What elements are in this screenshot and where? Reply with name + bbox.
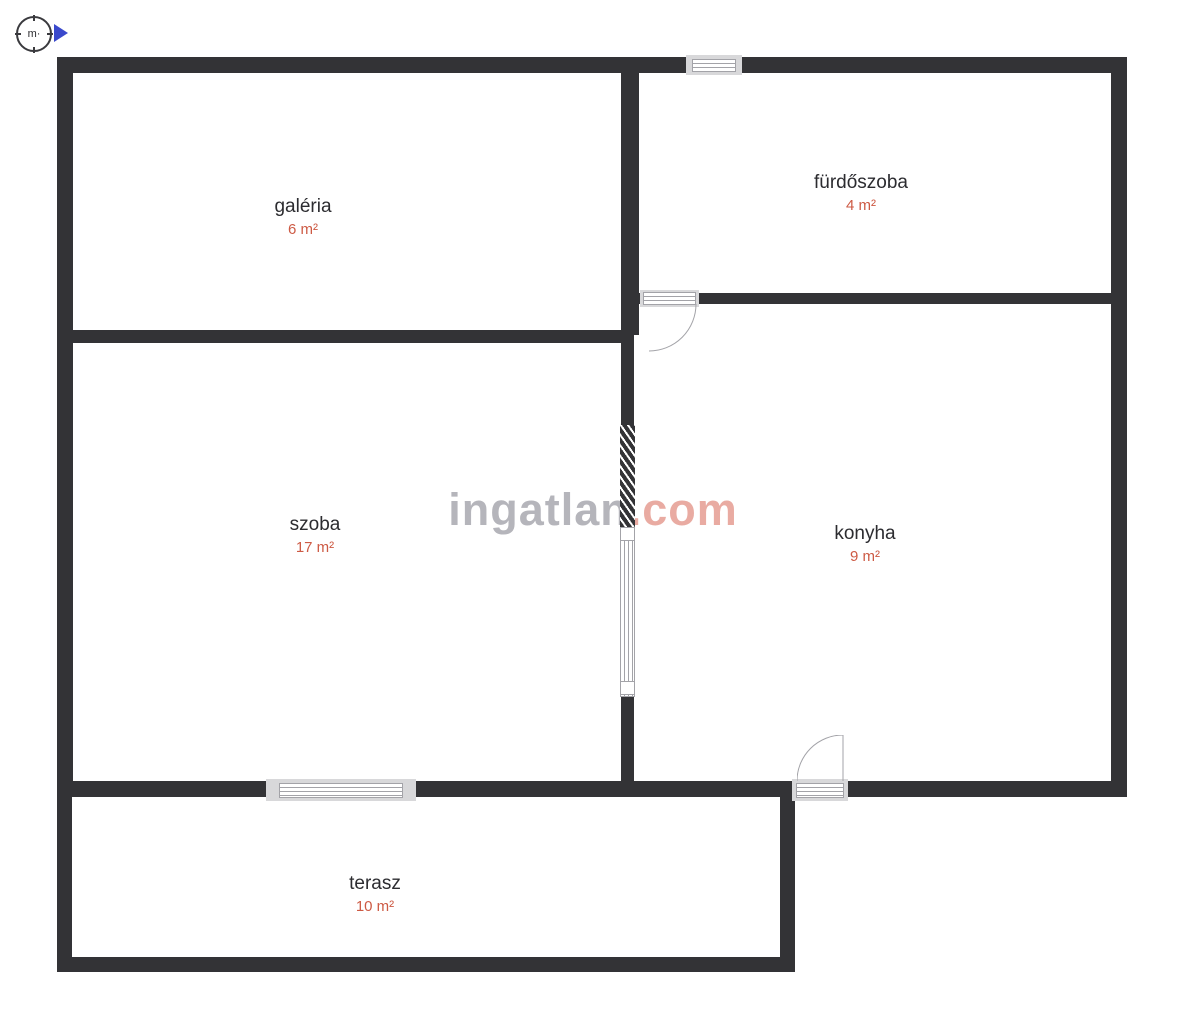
door-swing-arc-terasz [797,735,844,782]
watermark-tld: .com [629,484,738,535]
wall-right [1111,57,1127,797]
compass-label: m· [18,18,50,50]
room-name: fürdőszoba [814,172,908,194]
room-label-szoba: szoba 17 m² [290,514,341,559]
window-pane [692,59,736,72]
glass-wall-bottom-cap [620,681,635,695]
door-swing-arc-furdoszoba [649,304,697,352]
watermark-logo: ingatlan.com [448,484,738,536]
room-area: 9 m² [834,545,895,568]
wall-bottom [57,781,1127,797]
wall-terasz-left [57,797,72,972]
room-label-furdoszoba: fürdőszoba 4 m² [814,172,908,217]
room-name: konyha [834,523,895,545]
wall-terasz-right [780,797,795,972]
door-panel [796,783,844,798]
window-szoba [266,779,416,801]
wall-mid-upper [621,73,639,335]
room-area: 10 m² [349,895,401,918]
wall-furdoszoba-konyha [639,293,1111,304]
wall-top [57,57,1127,73]
window-furdoszoba [686,55,742,75]
room-area: 4 m² [814,194,908,217]
compass-circle: m· [16,16,52,52]
door-terasz [792,779,848,801]
wall-left [57,57,73,797]
glass-wall-szoba-konyha [620,527,635,697]
wall-terasz-bottom [57,957,795,972]
room-name: szoba [290,514,341,536]
room-label-galeria: galéria 6 m² [274,196,331,241]
room-label-terasz: terasz 10 m² [349,873,401,918]
compass-icon: m· [14,14,86,54]
glass-wall-top-cap [620,527,635,541]
room-area: 17 m² [290,536,341,559]
watermark-brand: ingatlan [448,484,629,535]
wall-galeria-szoba [73,330,621,343]
room-name: terasz [349,873,401,895]
ladder-symbol [620,425,635,527]
room-name: galéria [274,196,331,218]
floor-plan: ingatlan.com m· [0,0,1184,1024]
room-area: 6 m² [274,218,331,241]
compass-arrow-icon [54,24,68,42]
room-label-konyha: konyha 9 m² [834,523,895,568]
window-pane [279,783,403,798]
